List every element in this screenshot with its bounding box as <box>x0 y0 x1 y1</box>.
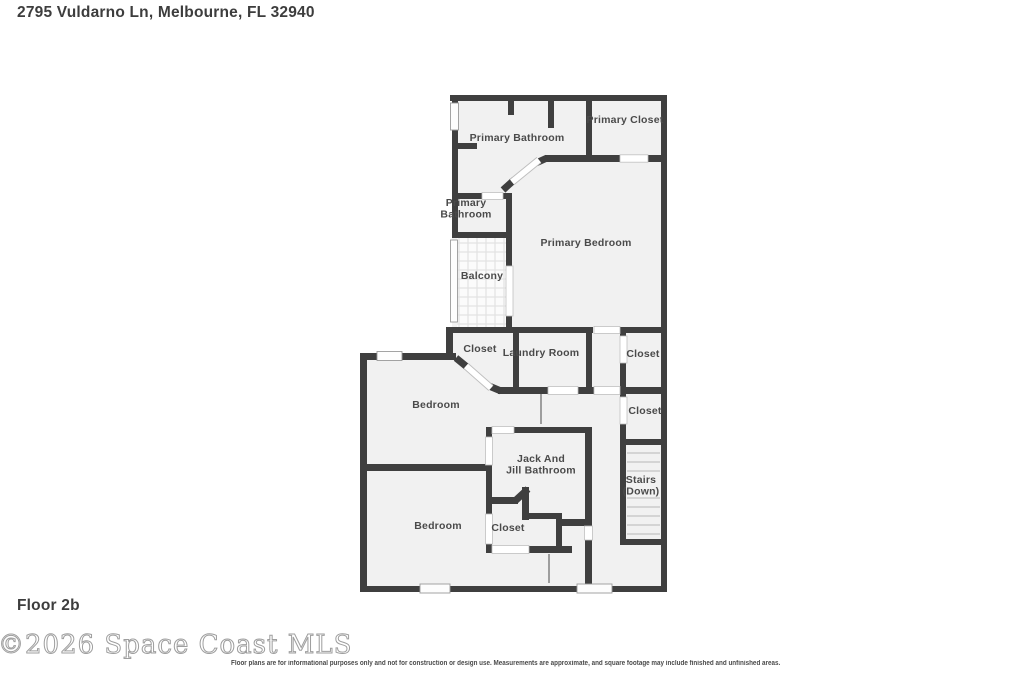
room-label-primary-bathroom-small: Bathroom <box>440 209 491 221</box>
room-label-balcony: Balcony <box>461 270 503 282</box>
room-label-closet-under-balcony: Closet <box>463 343 497 355</box>
room-label-primary-bathroom-main: Primary Bathroom <box>470 132 565 144</box>
room-label-closet-right-lower: Closet <box>628 405 662 417</box>
room-label-primary-closet: Primary Closet <box>587 114 664 126</box>
room-label-laundry-room: Laundry Room <box>503 347 580 359</box>
balcony-tile-floor <box>457 238 506 328</box>
room-label-jack-and-jill-bathroom: Jill Bathroom <box>506 465 576 477</box>
floor-plan: Primary BathroomPrimary ClosetPrimaryBat… <box>0 0 1024 683</box>
watermark: ©2026 Space Coast MLS <box>0 630 352 660</box>
room-label-stairs-down: Stairs <box>626 474 656 486</box>
room-label-bedroom-upper: Bedroom <box>412 399 460 411</box>
room-label-primary-bathroom-small: Primary <box>446 197 487 209</box>
disclaimer-text: Floor plans are for informational purpos… <box>231 660 807 667</box>
room-label-primary-bedroom: Primary Bedroom <box>540 237 631 249</box>
floor-label: Floor 2b <box>17 597 80 615</box>
room-label-closet-right-upper: Closet <box>626 348 660 360</box>
room-label-jack-and-jill-bathroom: Jack And <box>517 453 565 465</box>
room-label-closet-jack-and-jill: Closet <box>491 522 525 534</box>
room-label-bedroom-lower: Bedroom <box>414 520 462 532</box>
room-label-stairs-down: (Down) <box>623 486 660 498</box>
